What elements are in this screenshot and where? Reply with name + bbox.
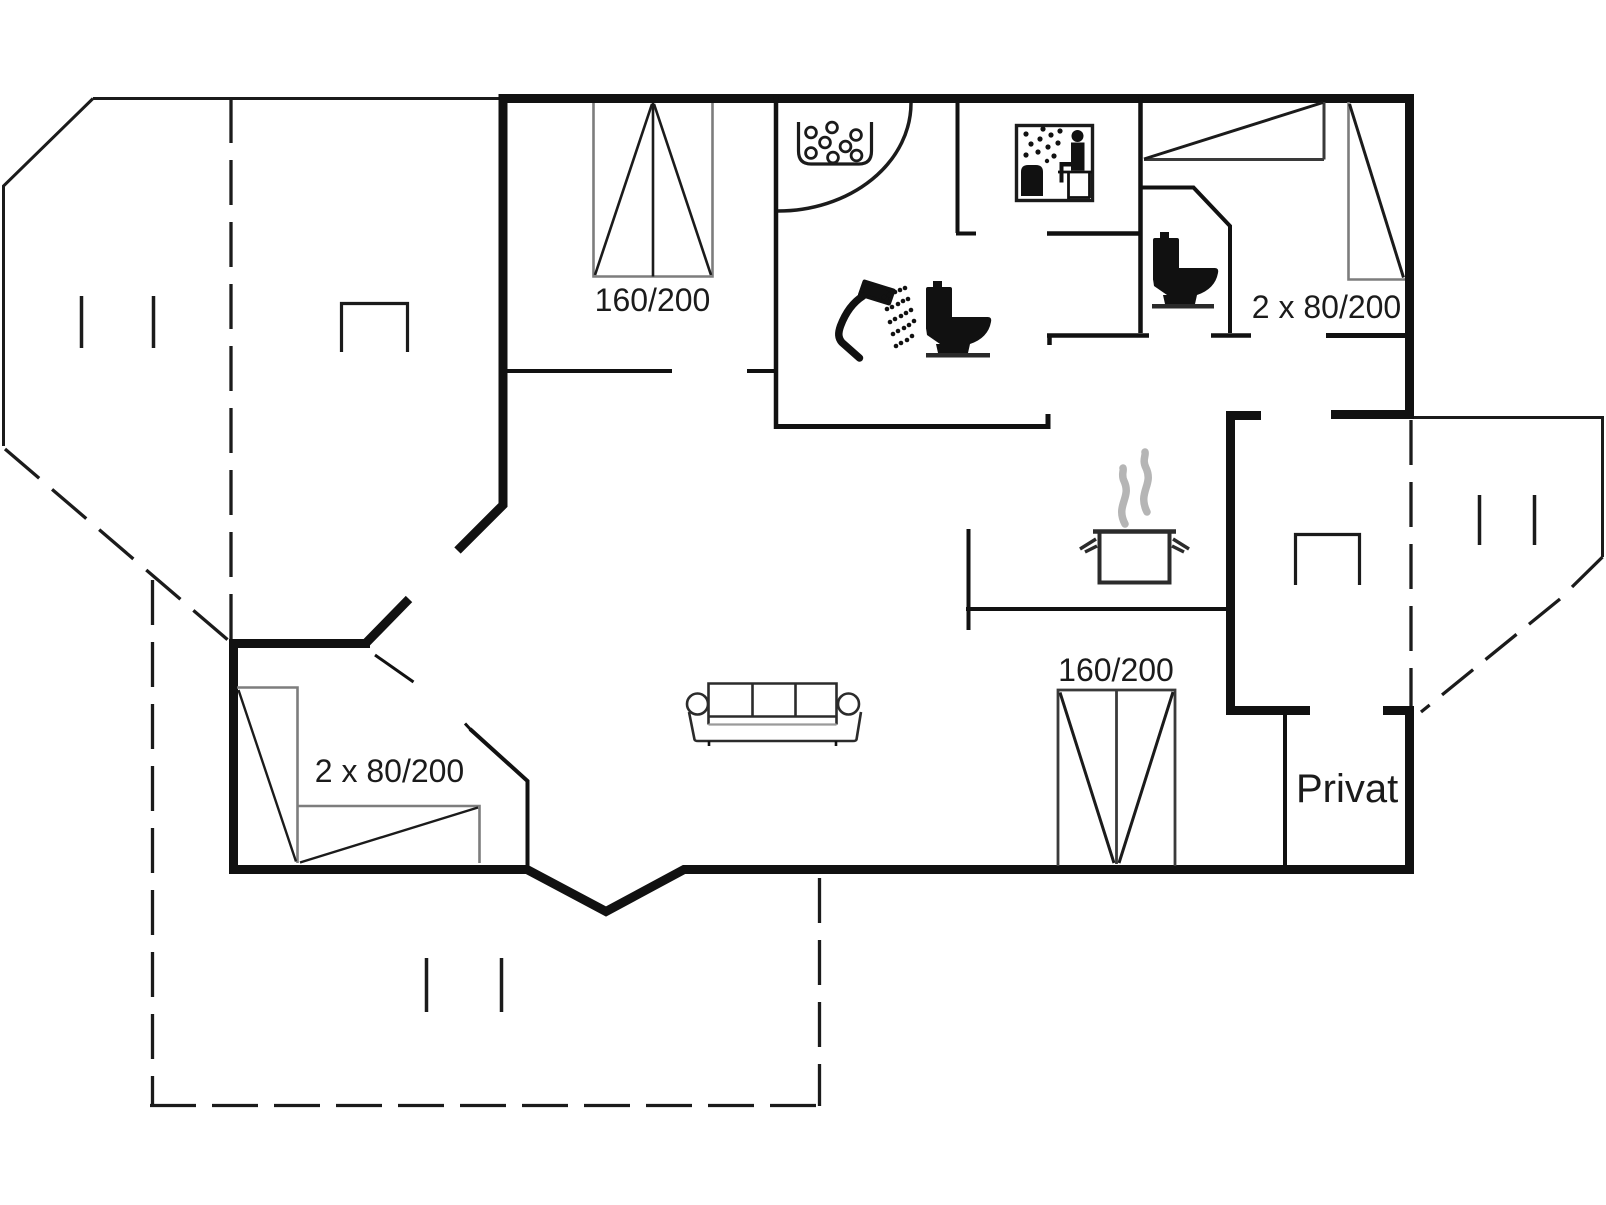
svg-text:2 x 80/200: 2 x 80/200 xyxy=(315,753,464,789)
svg-text:160/200: 160/200 xyxy=(595,282,711,318)
svg-text:Privat: Privat xyxy=(1296,767,1398,811)
svg-text:2 x 80/200: 2 x 80/200 xyxy=(1252,289,1401,325)
svg-text:160/200: 160/200 xyxy=(1058,652,1174,688)
